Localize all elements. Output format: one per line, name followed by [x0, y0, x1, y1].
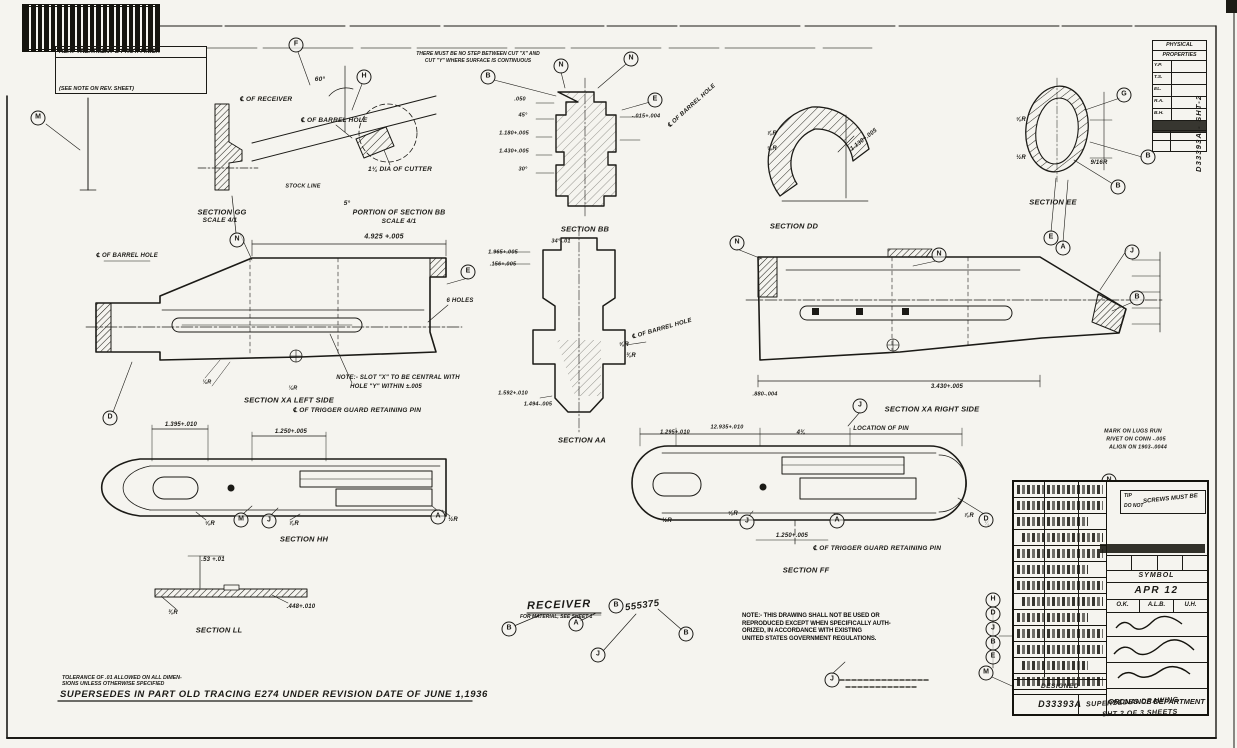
- annotation: SECTION AA: [558, 436, 606, 444]
- annotation: -.015+.004: [632, 114, 660, 120]
- annotation: ⅝R: [728, 511, 738, 517]
- heat-treatment-note-box: HEAT TREATMENT & PROT. FINISH (SEE NOTE …: [55, 46, 207, 94]
- annotation: 1.494-.005: [524, 402, 552, 408]
- revision-balloon: J: [1125, 245, 1140, 260]
- revision-row: [1014, 498, 1106, 514]
- revision-balloon: D: [986, 607, 1001, 622]
- annotation: 34°-.01: [551, 239, 570, 245]
- annotation: HOLE "Y" WITHIN ±.005: [350, 384, 422, 390]
- annotation: 1¼ DIA OF CUTTER: [368, 167, 432, 174]
- revision-row: [1014, 562, 1106, 578]
- tolerance-note-line2: SIONS UNLESS OTHERWISE SPECIFIED: [62, 681, 164, 687]
- annotation: NOTE:- SLOT "X" TO BE CENTRAL WITH: [336, 375, 460, 381]
- heat-treatment-subnote: (SEE NOTE ON REV. SHEET): [59, 86, 134, 92]
- revision-balloon: N: [230, 233, 245, 248]
- annotation: 1.395+.010: [165, 422, 197, 428]
- annotation: RIVET ON CONN -.005: [1106, 437, 1165, 442]
- revision-balloon: B: [1111, 180, 1126, 195]
- annotation: .156+.005: [490, 262, 516, 268]
- revision-balloon: J: [853, 399, 868, 414]
- revision-balloon: E: [986, 650, 1001, 665]
- annotation: 4.925 +.005: [364, 234, 403, 241]
- annotation: ½R: [448, 517, 458, 523]
- phys-title-line1: PHYSICAL: [1153, 41, 1206, 51]
- revision-balloon: N: [730, 236, 745, 251]
- annotation: ⅝R: [619, 342, 629, 348]
- annotation: ℄ OF RECEIVER: [240, 97, 293, 104]
- revision-balloon: N: [932, 248, 947, 263]
- approval-initials-row: O.K.A.L.B.U.H.: [1106, 599, 1207, 613]
- blueprint-sheet: HEAT TREATMENT & PROT. FINISH (SEE NOTE …: [0, 0, 1237, 748]
- revision-balloon: A: [830, 514, 845, 529]
- revision-balloon: B: [986, 636, 1001, 651]
- annotation: ⅞R: [289, 521, 299, 527]
- reproduction-warning-note: NOTE:- THIS DRAWING SHALL NOT BE USED OR…: [742, 613, 934, 643]
- approval-initial: A.L.B.: [1140, 599, 1174, 612]
- revision-table-divider: [1044, 482, 1045, 677]
- annotation: ⅛R: [203, 380, 212, 386]
- title-block-smudge-band: [1100, 544, 1205, 553]
- annotation: PORTION OF SECTION BB: [353, 210, 446, 217]
- scan-edge-artifact: [1226, 0, 1237, 13]
- annotation: SECTION LL: [196, 626, 243, 634]
- top-note-line1: THERE MUST BE NO STEP BETWEEN CUT "X" AN…: [416, 51, 540, 58]
- callout-note-line1: TIP: [1124, 493, 1132, 499]
- revision-balloon: H: [357, 70, 372, 85]
- warning-line: NOTE:- THIS DRAWING SHALL NOT BE USED OR: [742, 613, 934, 621]
- annotation: .53 +.01: [201, 557, 224, 563]
- revision-balloon: B: [679, 627, 694, 642]
- signature-area: [1106, 612, 1207, 689]
- revision-table: [1014, 482, 1106, 690]
- annotation: ⅝R: [1016, 117, 1026, 123]
- annotation: 60°: [315, 77, 325, 84]
- annotation: 1.295+.010: [660, 430, 690, 436]
- revision-balloon: B: [502, 622, 517, 637]
- annotation: 30°: [519, 167, 528, 173]
- annotation: 9/16R: [1090, 160, 1107, 166]
- annotation: ⅛R: [289, 386, 298, 392]
- revision-row: [1014, 530, 1106, 546]
- warning-line: REPRODUCED EXCEPT WHEN SPECIFICALLY AUTH…: [742, 621, 934, 629]
- revision-row: [1014, 642, 1106, 658]
- annotation: ℄ OF TRIGGER GUARD RETAINING PIN: [813, 546, 941, 553]
- annotation: SECTION GG: [197, 208, 246, 216]
- annotation: 1.592+.010: [498, 391, 528, 397]
- annotation: 1.430+.005: [499, 149, 529, 155]
- annotation: ½R: [1016, 155, 1026, 161]
- revision-row: [1014, 546, 1106, 562]
- revision-balloon: B: [609, 599, 624, 614]
- revision-balloon: D: [103, 411, 118, 426]
- revision-balloon: D: [979, 513, 994, 528]
- symbol-label: SYMBOL: [1106, 569, 1207, 583]
- callout-note-line2: DO NOT: [1124, 503, 1143, 509]
- annotation: LOCATION OF PIN: [853, 426, 909, 432]
- revision-balloon: J: [825, 673, 840, 688]
- callout-note-main: SCREWS MUST BE: [1143, 493, 1198, 505]
- designed-cell: DESIGNED: [1014, 679, 1106, 695]
- revision-row: [1014, 482, 1106, 498]
- revision-balloon: J: [591, 648, 606, 663]
- revision-balloon: M: [979, 666, 994, 681]
- annotation: ⅝R: [205, 521, 215, 527]
- revision-table-divider: [1078, 482, 1079, 677]
- callout-note-box: TIP DO NOT SCREWS MUST BE: [1120, 490, 1206, 514]
- revision-row: [1014, 578, 1106, 594]
- annotation: ⅞R: [767, 131, 777, 137]
- title-block: TIP DO NOT SCREWS MUST BE SYMBOL APR 12 …: [1012, 480, 1209, 716]
- annotation: .880-.004: [752, 392, 777, 398]
- annotation: 3.430+.005: [931, 384, 963, 390]
- warning-line: UNITED STATES GOVERNMENT REGULATIONS.: [742, 636, 934, 644]
- annotation: SCALE 4/1: [203, 218, 238, 225]
- revision-balloon: M: [234, 513, 249, 528]
- annotation: SECTION BB: [561, 225, 609, 233]
- annotation: SECTION EE: [1029, 198, 1076, 206]
- annotation: 5°: [344, 201, 351, 208]
- revision-balloon: B: [481, 70, 496, 85]
- symbol-value: APR 12: [1106, 582, 1207, 600]
- annotation: 1.965+.005: [488, 250, 518, 256]
- annotation: ALIGN ON 1903-.0044: [1109, 445, 1167, 450]
- annotation: SECTION DD: [770, 222, 818, 230]
- heat-treatment-title: HEAT TREATMENT & PROT. FINISH: [56, 47, 206, 58]
- annotation: ℄ OF BARREL HOLE: [96, 253, 158, 259]
- annotation: ⅜R: [626, 353, 636, 359]
- revision-row: [1014, 594, 1106, 610]
- margin-drawing-number: D33393A - SHT-2: [1194, 95, 1203, 172]
- annotation: 45°: [519, 113, 528, 119]
- phys-row-label: T.S.: [1153, 73, 1172, 84]
- revision-balloon: A: [1056, 241, 1071, 256]
- phys-title-line2: PROPERTIES: [1153, 51, 1206, 61]
- warning-line: ORIZED, IN ACCORDANCE WITH EXISTING: [742, 628, 934, 636]
- revision-balloon: H: [986, 593, 1001, 608]
- part-material-note: FOR MATERIAL, SEE SHEET 1: [520, 614, 592, 620]
- part-title: RECEIVER: [527, 598, 592, 612]
- revision-row: [1014, 514, 1106, 530]
- revision-row: [1014, 658, 1106, 674]
- approval-stamp: [22, 4, 160, 52]
- annotation: 6 HOLES: [446, 298, 473, 304]
- phys-row-label: B.H.: [1153, 109, 1172, 120]
- annotation: STOCK LINE: [285, 184, 320, 190]
- revision-row: [1014, 610, 1106, 626]
- phys-row-label: R.A.: [1153, 97, 1172, 108]
- revision-balloon: B: [1130, 291, 1145, 306]
- approval-initial: O.K.: [1106, 599, 1140, 612]
- annotation: ⅞R: [964, 513, 974, 519]
- revision-balloon: N: [624, 52, 639, 67]
- approval-initial: U.H.: [1174, 599, 1207, 612]
- revision-balloon: E: [461, 265, 476, 280]
- revision-balloon: J: [986, 622, 1001, 637]
- revision-balloon: E: [648, 93, 663, 108]
- annotation: ⅝R: [767, 146, 777, 152]
- revision-row: [1014, 626, 1106, 642]
- annotation: 1.250+.005: [776, 533, 808, 539]
- phys-row-label: Y.P.: [1153, 61, 1172, 72]
- annotation: MARK ON LUGS RUN: [1104, 429, 1162, 434]
- revision-balloon: J: [262, 514, 277, 529]
- top-note-line2: CUT "Y" WHERE SURFACE IS CONTINUOUS: [416, 58, 540, 65]
- annotation: SECTION XA RIGHT SIDE: [885, 405, 980, 413]
- annotation: ½R: [662, 518, 672, 524]
- annotation: SCALE 4/1: [382, 219, 417, 226]
- annotation: .448+.010: [287, 604, 316, 610]
- phys-row: T.S.: [1153, 73, 1206, 85]
- phys-row-label: EL.: [1153, 85, 1172, 96]
- annotation: SECTION FF: [783, 566, 830, 574]
- annotation: ⅜R: [168, 610, 178, 616]
- revision-balloon: A: [431, 510, 446, 525]
- annotation: ℄ OF BARREL HOLE: [301, 118, 368, 125]
- top-note: THERE MUST BE NO STEP BETWEEN CUT "X" AN…: [416, 51, 540, 64]
- revision-balloon: M: [31, 111, 46, 126]
- supersedes-note: SUPERSEDES IN PART OLD TRACING E274 UNDE…: [60, 689, 488, 700]
- phys-row: Y.P.: [1153, 61, 1206, 73]
- annotation: 4⅜: [797, 430, 806, 436]
- annotation: 1.180+.005: [499, 131, 529, 137]
- revision-balloon: G: [1117, 88, 1132, 103]
- annotation: SECTION XA LEFT SIDE: [244, 396, 334, 404]
- annotation: 1.250+.005: [275, 429, 307, 435]
- annotation: SECTION HH: [280, 535, 328, 543]
- revision-balloon: F: [289, 38, 304, 53]
- revision-balloon: J: [740, 515, 755, 530]
- annotation: .050: [514, 97, 526, 103]
- annotation: ℄ OF TRIGGER GUARD RETAINING PIN: [293, 408, 421, 415]
- revision-balloon: N: [554, 59, 569, 74]
- annotation: 12.935+.010: [711, 425, 744, 431]
